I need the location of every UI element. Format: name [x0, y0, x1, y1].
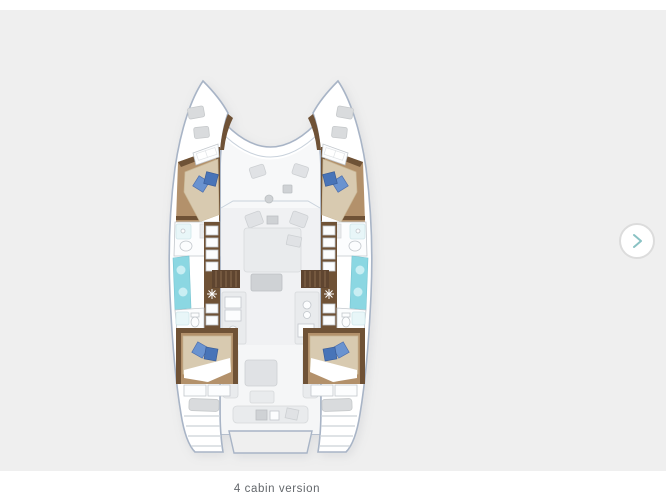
salon-table — [251, 274, 282, 291]
next-slide-button[interactable] — [619, 223, 655, 259]
cockpit-table — [245, 360, 277, 386]
bed-cushion — [204, 172, 219, 187]
hull-window-strip — [173, 256, 191, 310]
chevron-right-icon — [621, 225, 653, 257]
image-carousel-panel — [0, 10, 666, 471]
bed-cushion — [204, 347, 218, 361]
salon-sofa — [244, 228, 301, 272]
fan-icon — [207, 289, 217, 299]
galley-sink — [303, 301, 311, 309]
toilet — [191, 317, 199, 327]
mast-base — [265, 195, 273, 203]
catamaran-floorplan-4-cabin — [160, 72, 380, 462]
floorplan-caption: 4 cabin version — [177, 483, 377, 495]
stern-notch — [229, 431, 312, 453]
